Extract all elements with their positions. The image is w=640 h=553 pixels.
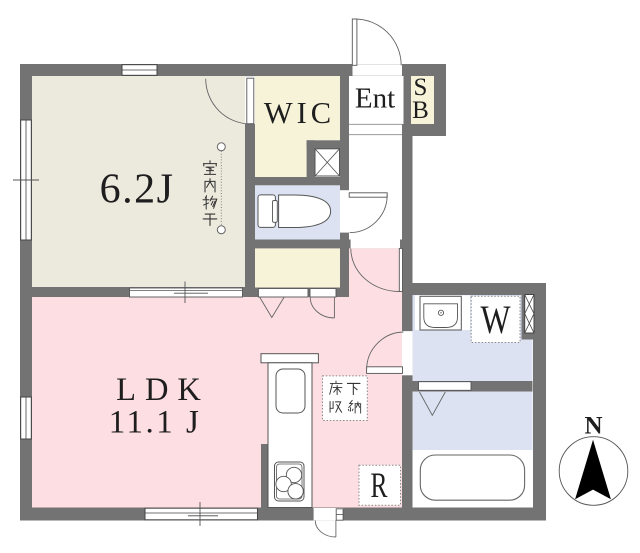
svg-text:B: B bbox=[412, 97, 429, 124]
svg-text:6.2J: 6.2J bbox=[100, 167, 175, 213]
svg-text:R: R bbox=[371, 465, 388, 505]
svg-text:11.1 J: 11.1 J bbox=[109, 405, 202, 441]
svg-text:W: W bbox=[481, 297, 511, 342]
svg-text:WIC: WIC bbox=[264, 96, 335, 130]
svg-text:Ent: Ent bbox=[355, 83, 395, 115]
svg-text:LDK: LDK bbox=[116, 372, 210, 408]
svg-text:N: N bbox=[584, 413, 602, 440]
